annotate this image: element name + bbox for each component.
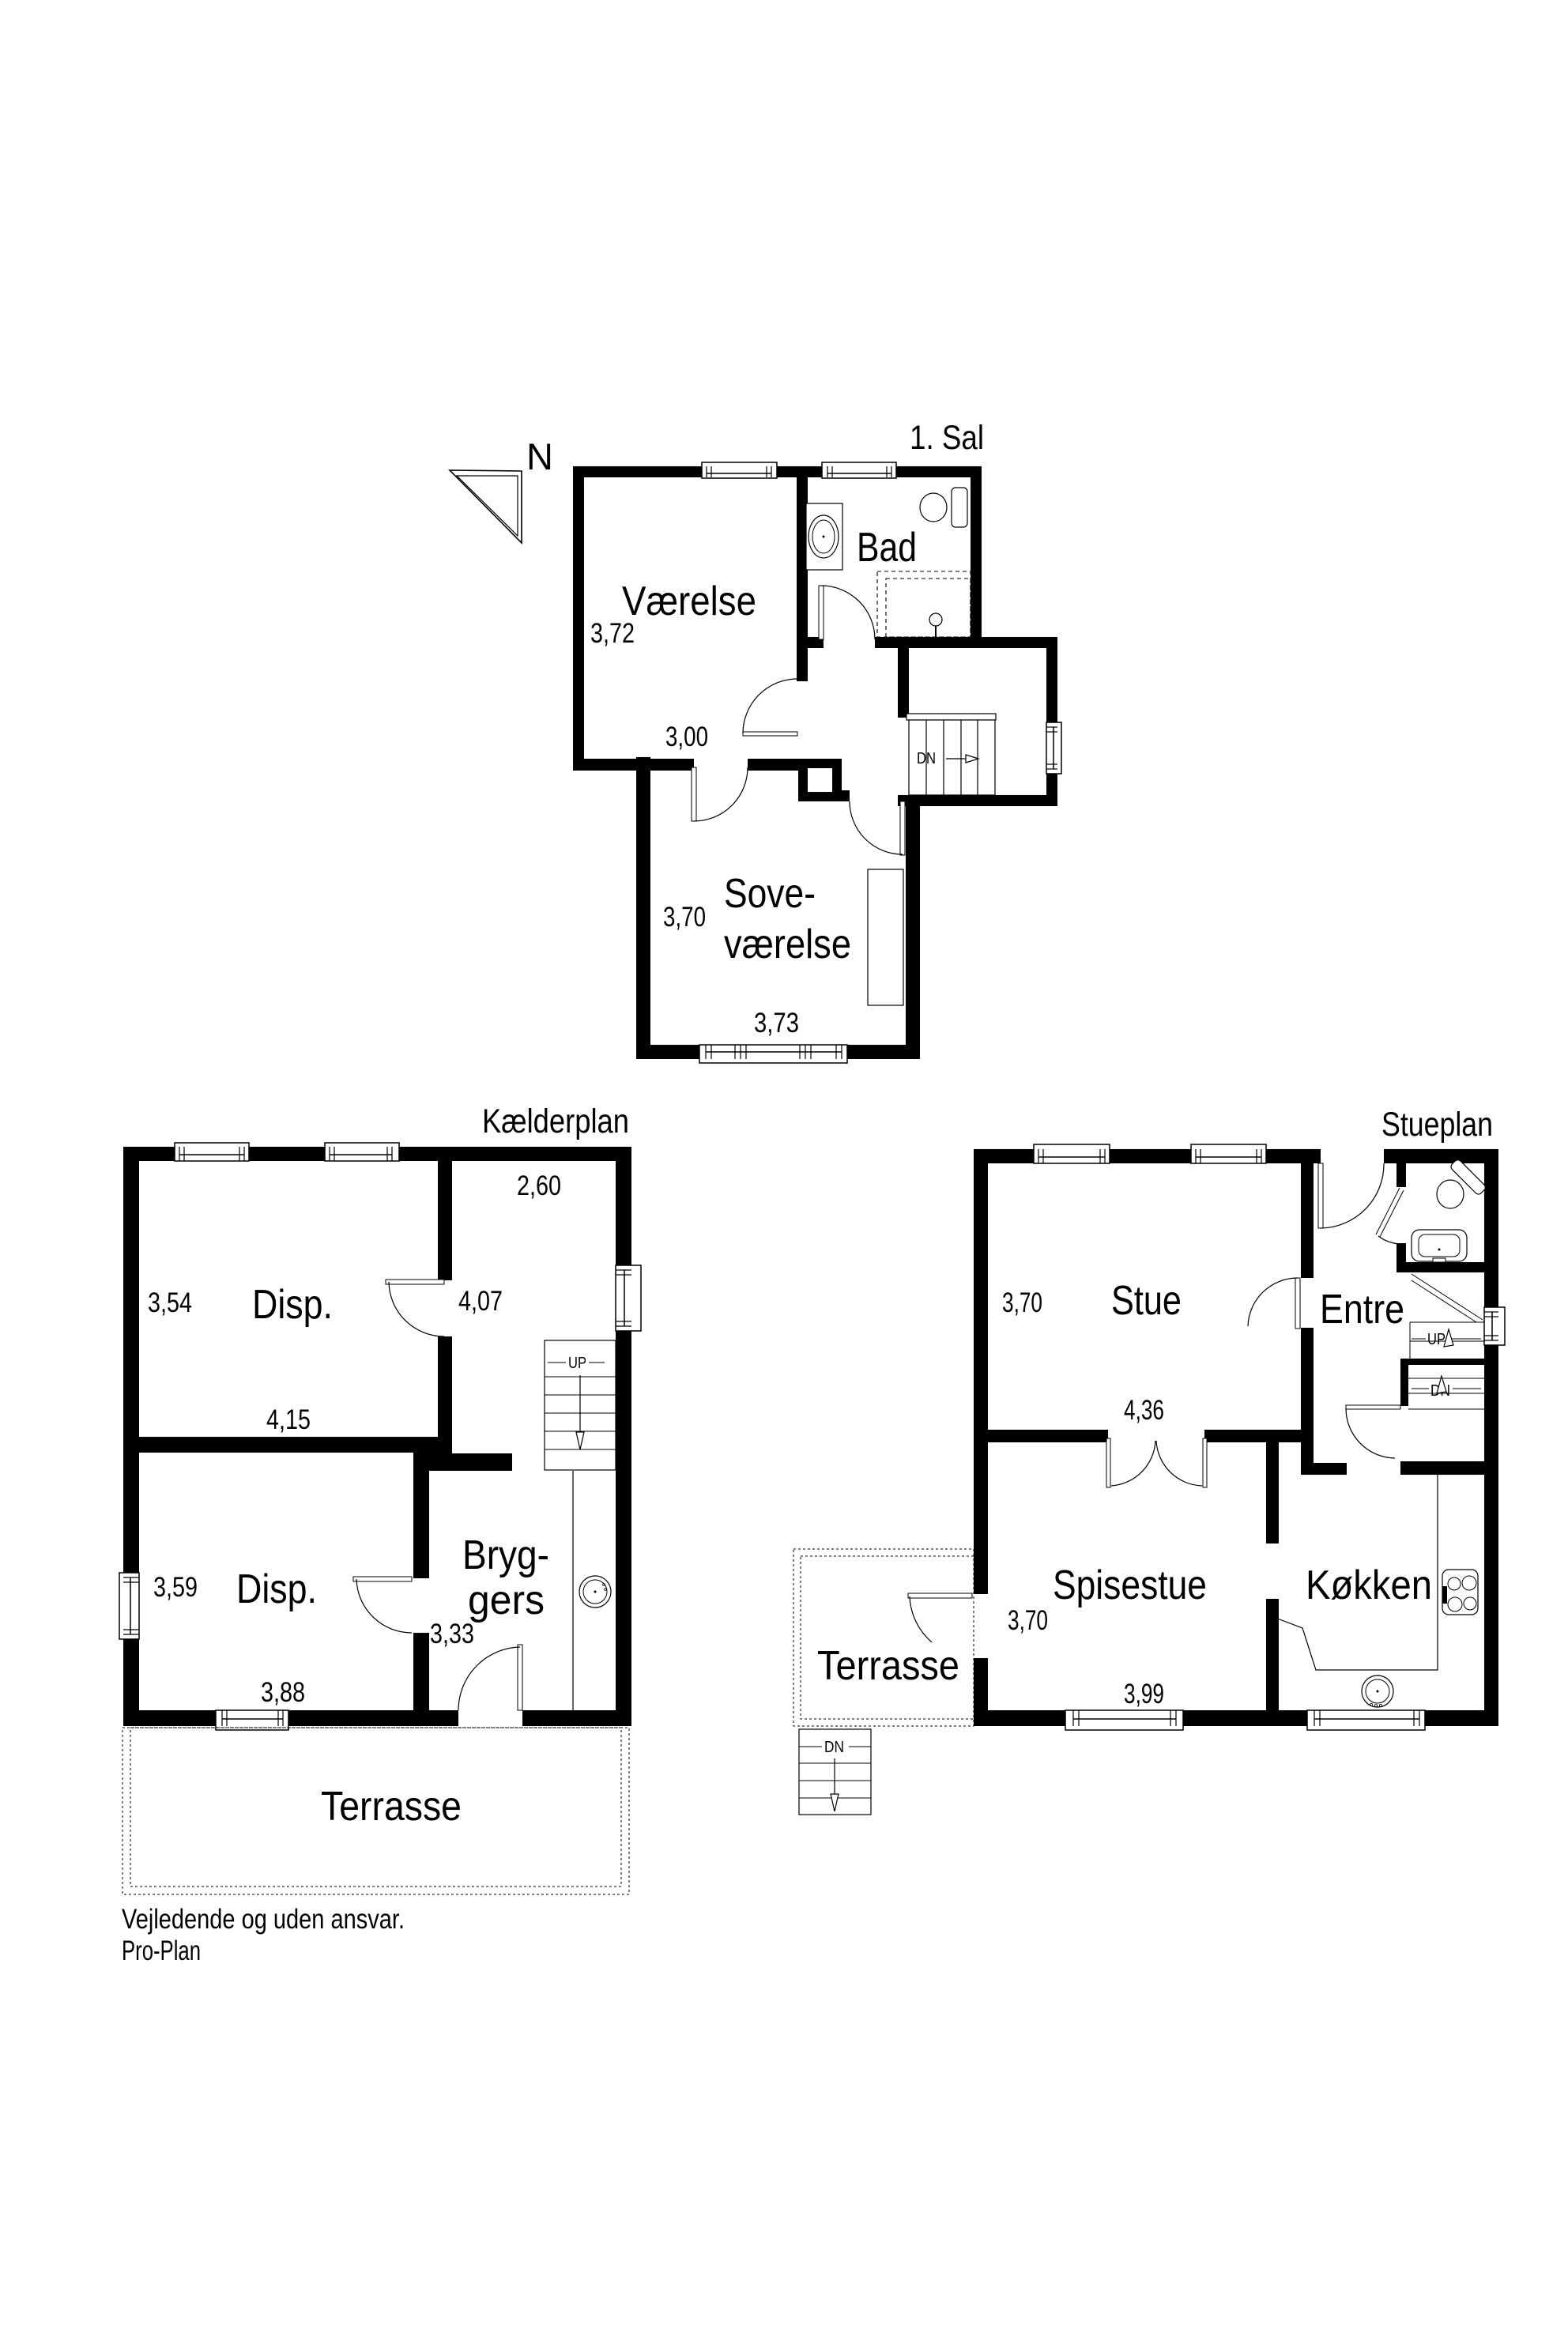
svg-text:N: N [526,435,553,477]
svg-text:Sove-: Sove- [724,871,816,917]
svg-text:3,73: 3,73 [754,1008,799,1038]
svg-text:gers: gers [468,1577,545,1623]
svg-text:3,54: 3,54 [148,1287,192,1318]
svg-text:3,88: 3,88 [261,1677,305,1708]
svg-text:DN: DN [824,1739,844,1756]
svg-text:Bad: Bad [857,525,917,571]
svg-text:UP: UP [568,1355,586,1372]
svg-text:3,70: 3,70 [663,902,706,933]
svg-text:2,60: 2,60 [517,1170,561,1201]
svg-text:DN: DN [917,750,936,767]
svg-text:Entre: Entre [1320,1287,1404,1332]
svg-text:Bryg-: Bryg- [462,1532,549,1578]
svg-text:Spisestue: Spisestue [1053,1562,1207,1608]
svg-text:Terrasse: Terrasse [321,1784,462,1830]
svg-text:4,07: 4,07 [458,1286,503,1317]
svg-text:Værelse: Værelse [622,579,756,624]
svg-text:Disp.: Disp. [252,1282,333,1328]
svg-text:3,70: 3,70 [1008,1605,1048,1636]
svg-text:3,00: 3,00 [665,722,708,752]
svg-text:3,70: 3,70 [1002,1287,1042,1318]
svg-text:1. Sal: 1. Sal [910,419,984,457]
svg-text:Stueplan: Stueplan [1381,1106,1493,1144]
svg-text:3,33: 3,33 [430,1619,474,1649]
svg-text:værelse: værelse [724,922,851,967]
svg-text:Terrasse: Terrasse [817,1643,959,1689]
svg-text:4,36: 4,36 [1124,1395,1164,1426]
svg-text:3,72: 3,72 [590,618,635,649]
svg-text:Stue: Stue [1111,1278,1182,1324]
svg-text:3,99: 3,99 [1124,1679,1164,1709]
svg-text:Disp.: Disp. [236,1566,317,1612]
svg-text:Pro-Plan: Pro-Plan [122,1935,201,1966]
svg-text:Kælderplan: Kælderplan [482,1102,629,1140]
svg-text:Vejledende og uden ansvar.: Vejledende og uden ansvar. [122,1904,405,1935]
svg-text:UP: UP [1427,1331,1445,1348]
svg-text:3,59: 3,59 [153,1572,198,1603]
svg-text:4,15: 4,15 [266,1404,311,1435]
svg-text:Køkken: Køkken [1306,1562,1432,1608]
